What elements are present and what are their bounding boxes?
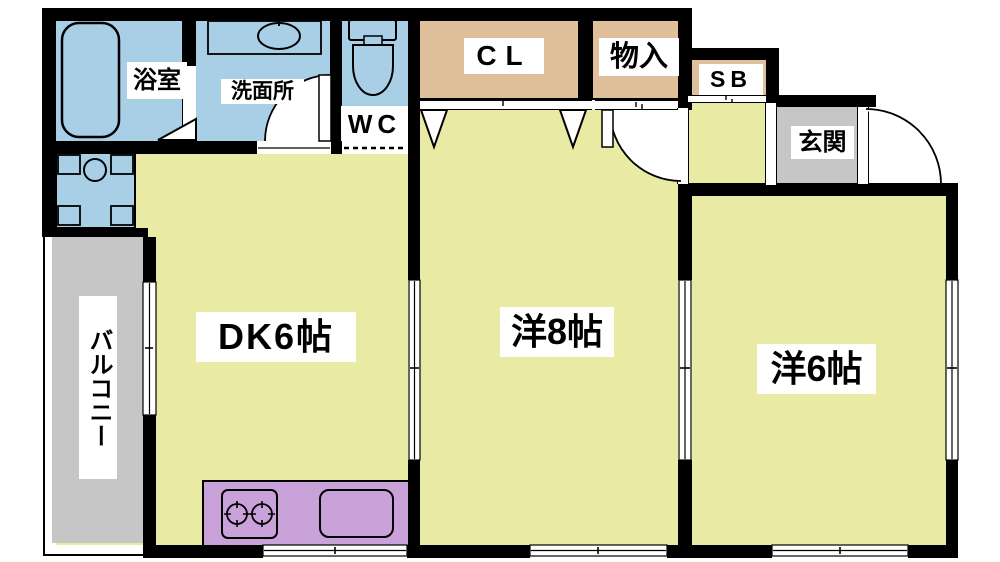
label-wc: WC [341, 106, 408, 141]
window [263, 545, 908, 556]
label-storage: 物入 [599, 38, 679, 76]
label-dining-kitchen: DK6帖 [196, 312, 356, 362]
toilet-icon [349, 20, 396, 95]
washbasin-icon [208, 18, 321, 54]
label-western-6: 洋6帖 [757, 344, 876, 394]
label-closet: CL [464, 38, 544, 74]
label-balcony: バルコニー [79, 296, 117, 479]
bathtub-icon [62, 23, 119, 137]
floor-plan: 浴室 洗面所 WC CL 物入 SB 玄関 DK6帖 洋8帖 洋6帖 バルコニー [0, 0, 1000, 562]
western8-door-icon [602, 110, 681, 181]
track-ticks [503, 96, 732, 109]
label-washroom: 洗面所 [221, 79, 304, 104]
closet-folding-door-icon [421, 110, 447, 147]
entrance-door-swing-icon [866, 109, 941, 184]
label-western-8: 洋8帖 [500, 307, 614, 357]
gas-stove-icon [222, 490, 277, 538]
bathroom-door-icon [158, 119, 196, 140]
kitchen-sink-icon [320, 490, 393, 537]
label-bathroom: 浴室 [127, 62, 187, 99]
closet-folding-door-icon [560, 110, 586, 147]
label-entrance: 玄関 [791, 126, 854, 159]
window [946, 280, 958, 460]
washing-machine-pan-icon [56, 153, 135, 228]
label-shoe-box: SB [699, 64, 763, 95]
